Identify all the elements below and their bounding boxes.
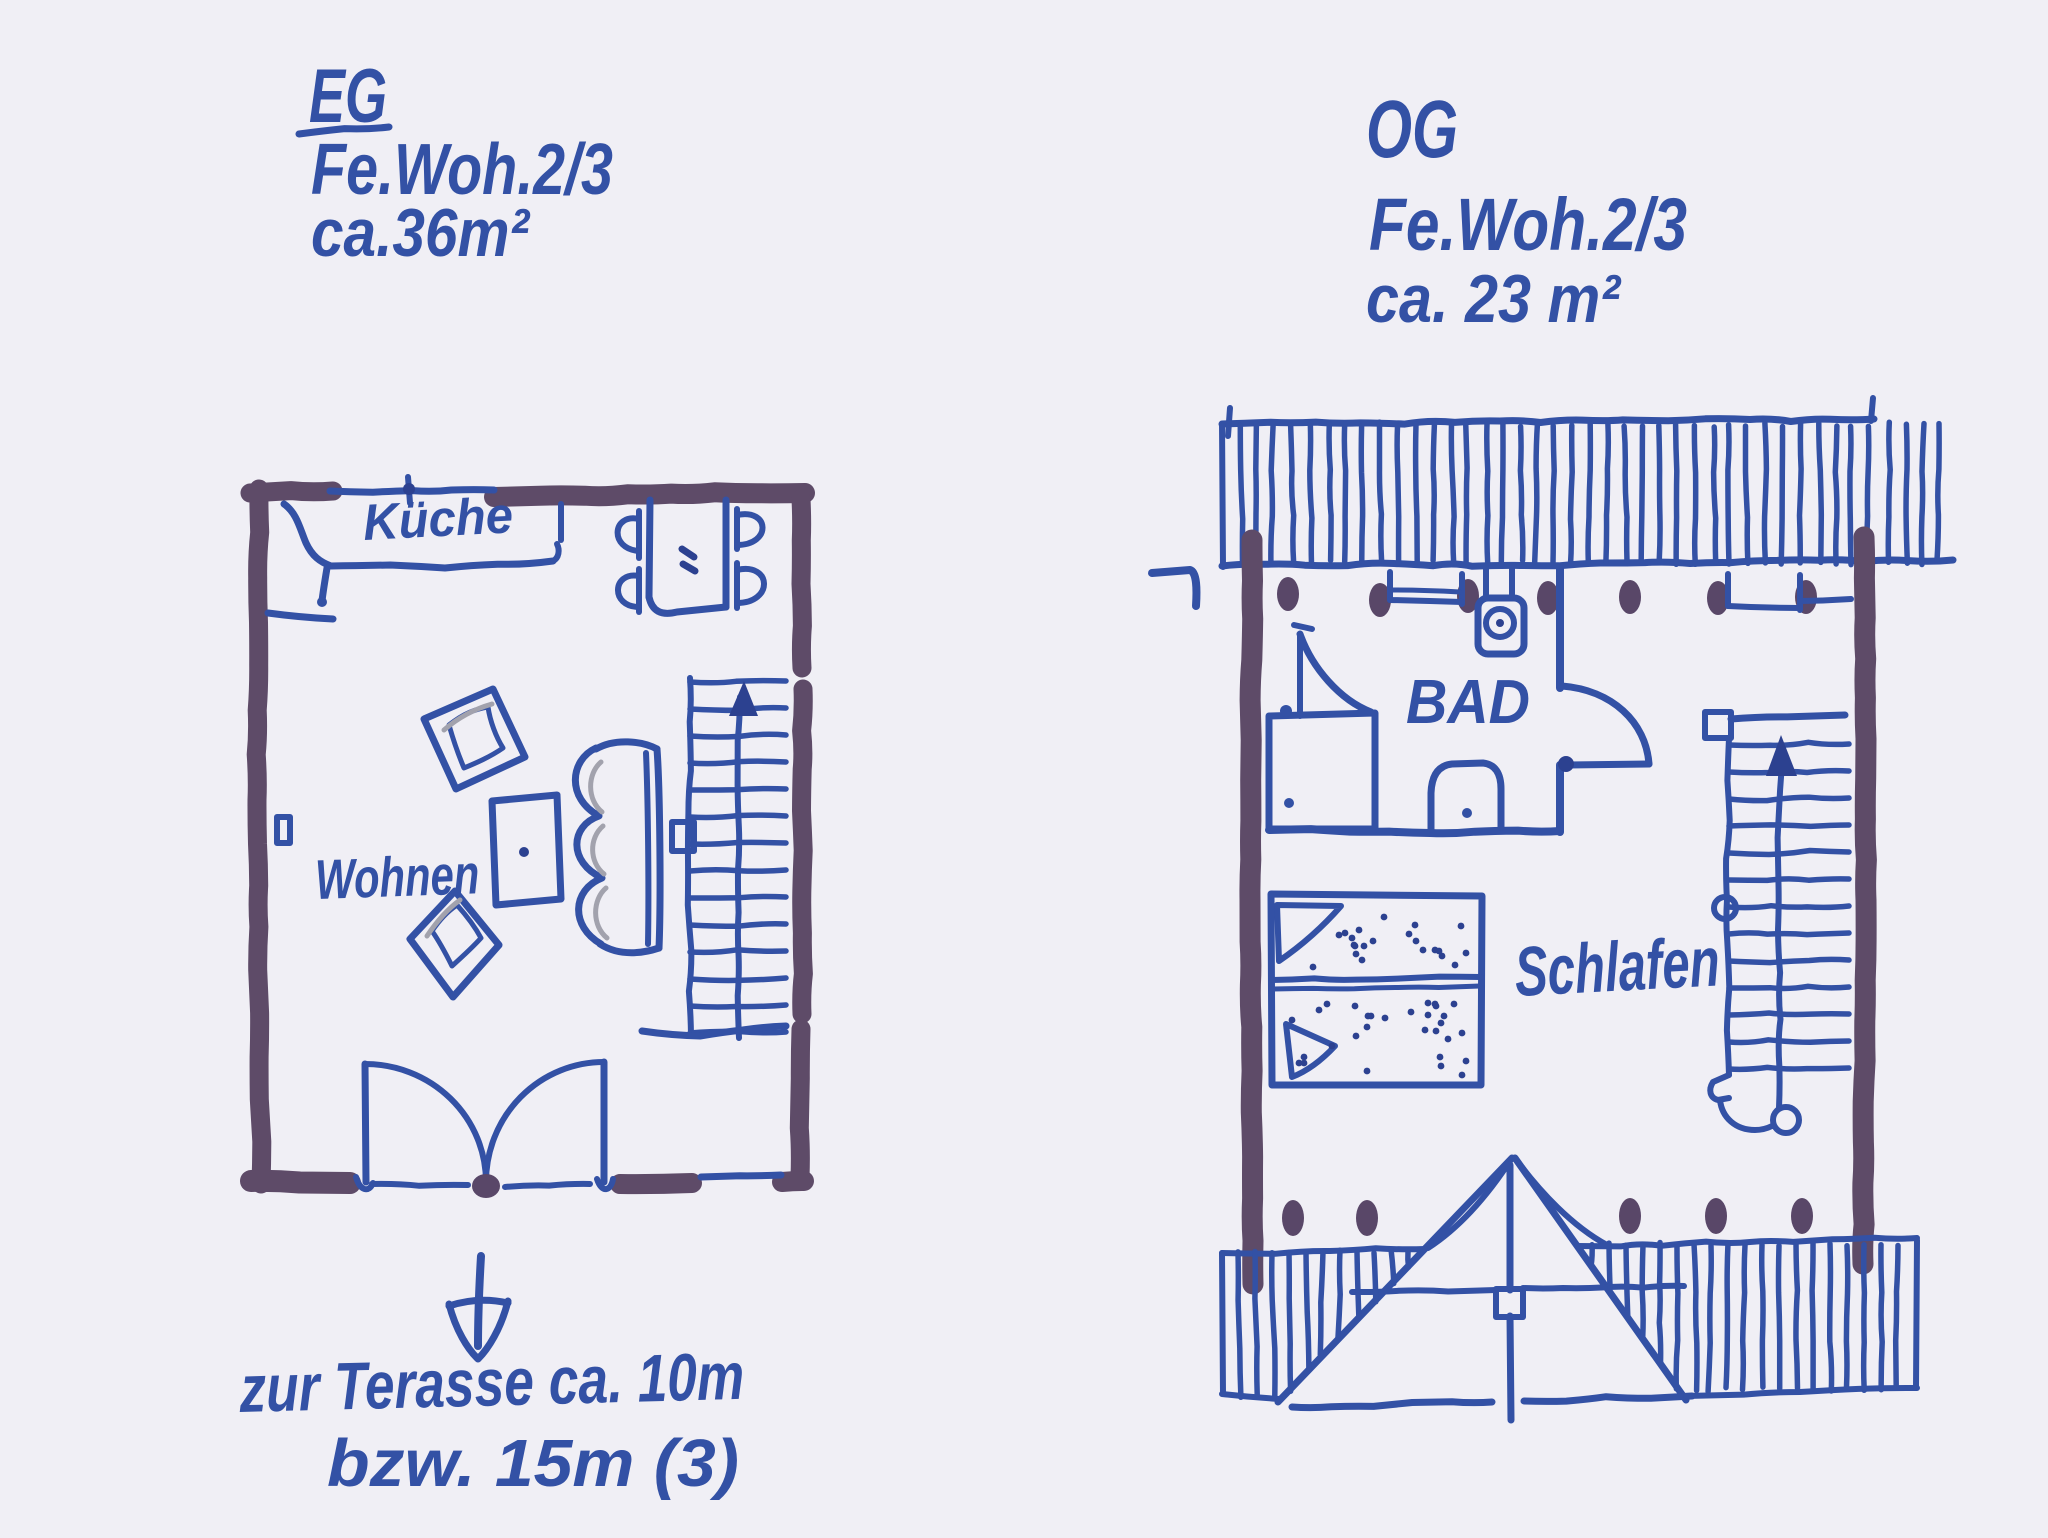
svg-text:ca.36m²: ca.36m² xyxy=(311,195,531,271)
svg-text:Fe.Woh.2/3: Fe.Woh.2/3 xyxy=(1369,183,1687,266)
svg-text:ca. 23 m²: ca. 23 m² xyxy=(1366,261,1622,337)
svg-text:BAD: BAD xyxy=(1406,668,1530,737)
svg-text:bzw. 15m (3): bzw. 15m (3) xyxy=(327,1426,739,1501)
svg-text:Küche: Küche xyxy=(362,486,515,551)
svg-text:Schlafen: Schlafen xyxy=(1513,922,1722,1011)
svg-text:OG: OG xyxy=(1366,84,1458,175)
svg-text:zur Terasse ca. 10m: zur Terasse ca. 10m xyxy=(238,1339,746,1427)
